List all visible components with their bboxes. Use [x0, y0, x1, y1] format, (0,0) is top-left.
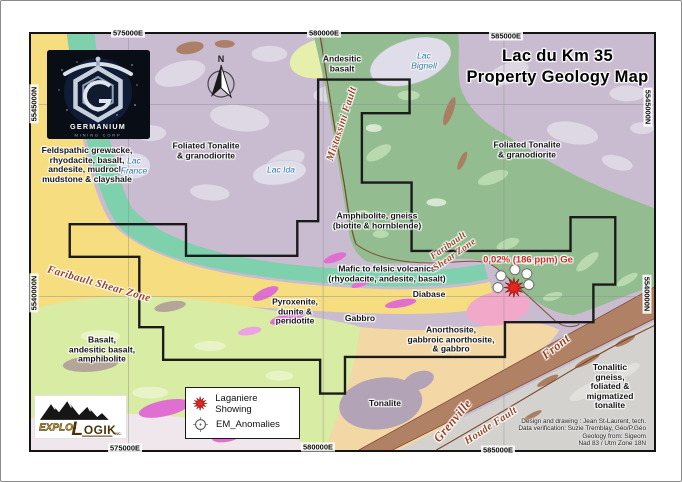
grid-label-bottom-580000e: 580000E	[301, 443, 335, 452]
north-label: N	[218, 54, 225, 64]
explologik-l: L	[71, 419, 83, 438]
map-canvas: N Lac du Km 35 Property Geology Map Feld…	[29, 32, 656, 452]
unit-label-pyroxenite: Pyroxenite, dunite & peridotite	[272, 298, 318, 327]
unit-label-gabbro: Gabbro	[345, 314, 375, 324]
legend-box: Laganiere Showing EM_Anomalies	[185, 387, 300, 439]
legend-label-em: EM_Anomalies	[216, 419, 280, 430]
unit-label-amphibolite: Amphibolite, gneiss (biotite & hornblend…	[333, 211, 421, 230]
unit-label-andesitic-basalt: Andesitic basalt	[323, 54, 361, 73]
grid-label-right-5540000n: 5540000N	[643, 275, 652, 314]
lake-label-ida: Lac Ida	[267, 165, 295, 175]
unit-label-tonalite: Tonalite	[369, 399, 401, 409]
grid-label-left-5540000n: 5540000N	[30, 274, 39, 313]
ge-annotation: 0,02% (186 ppm) Ge	[483, 255, 573, 266]
mountains-icon	[40, 401, 109, 420]
unit-label-basalt: Basalt, andesitic basalt, amphibolite	[69, 336, 135, 365]
title-line-1: Lac du Km 35	[445, 46, 656, 67]
unit-label-foliated-tonalite-left: Foliated Tonalite & granodiorite	[173, 141, 240, 160]
grid-label-top-575000e: 575000E	[111, 29, 145, 38]
unit-label-mafic-volcanics: Mafic to felsic volcanics (rhyodacite, a…	[328, 264, 445, 283]
legend-label-showing: Laganiere Showing	[215, 393, 293, 415]
germanium-logo-graphic: GERMANIUM MINING CORP	[47, 50, 150, 139]
germanium-logo-name: GERMANIUM	[70, 122, 126, 131]
explologik-suffix: INC.	[114, 432, 121, 436]
hexagon-g-emblem	[76, 68, 121, 120]
grid-label-top-585000e: 585000E	[489, 32, 523, 41]
north-arrow-icon: N	[203, 52, 239, 106]
unit-label-feldspathic: Feldspathic grewacke, rhyodacite, basalt…	[42, 146, 133, 184]
unit-label-tonalitic-gneiss: Tonalitic gneiss, foliated & migmatized …	[587, 363, 634, 411]
grid-label-bottom-575000e: 575000E	[108, 444, 142, 453]
credit-line: Data verification: Suzie Tremblay, Géo/P…	[518, 425, 646, 432]
explologik-logo-graphic: EXPLO- L OGIK INC.	[35, 396, 126, 438]
grid-label-right-5545000n: 5545000N	[644, 88, 653, 127]
title-line-2: Property Geology Map	[445, 67, 656, 88]
legend-item-em: EM_Anomalies	[192, 416, 293, 433]
unit-label-diabase: Diabase	[413, 290, 446, 300]
grid-label-bottom-585000e: 585000E	[481, 446, 515, 455]
showing-star-legend-icon	[192, 395, 208, 412]
unit-label-anorthosite: Anorthosite, gabbroic anorthosite, & gab…	[408, 326, 495, 355]
germanium-logo-tagline: MINING CORP	[75, 133, 122, 138]
credit-line: Nad 83 / Utm Zone 18N	[518, 440, 646, 447]
em-anomaly-legend-icon	[192, 416, 209, 433]
explologik-rest: OGIK	[84, 423, 116, 437]
lake-label-bignell: Lac Bignell	[411, 52, 437, 71]
germanium-logo: GERMANIUM MINING CORP	[47, 50, 150, 139]
page: N Lac du Km 35 Property Geology Map Feld…	[0, 0, 682, 482]
explologik-logo: EXPLO- L OGIK INC.	[34, 395, 127, 439]
grid-label-left-5545000n: 5545000N	[30, 85, 39, 124]
map-title: Lac du Km 35 Property Geology Map	[445, 46, 656, 88]
unit-label-foliated-tonalite-right: Foliated Tonalite & granodiorite	[494, 140, 561, 159]
credits-block: Design and drawing : Jean St-Laurent, te…	[518, 418, 646, 448]
grid-label-top-580000e: 580000E	[307, 29, 341, 38]
lake-label-france: Lac France	[121, 157, 147, 176]
legend-item-showing: Laganiere Showing	[192, 393, 293, 415]
